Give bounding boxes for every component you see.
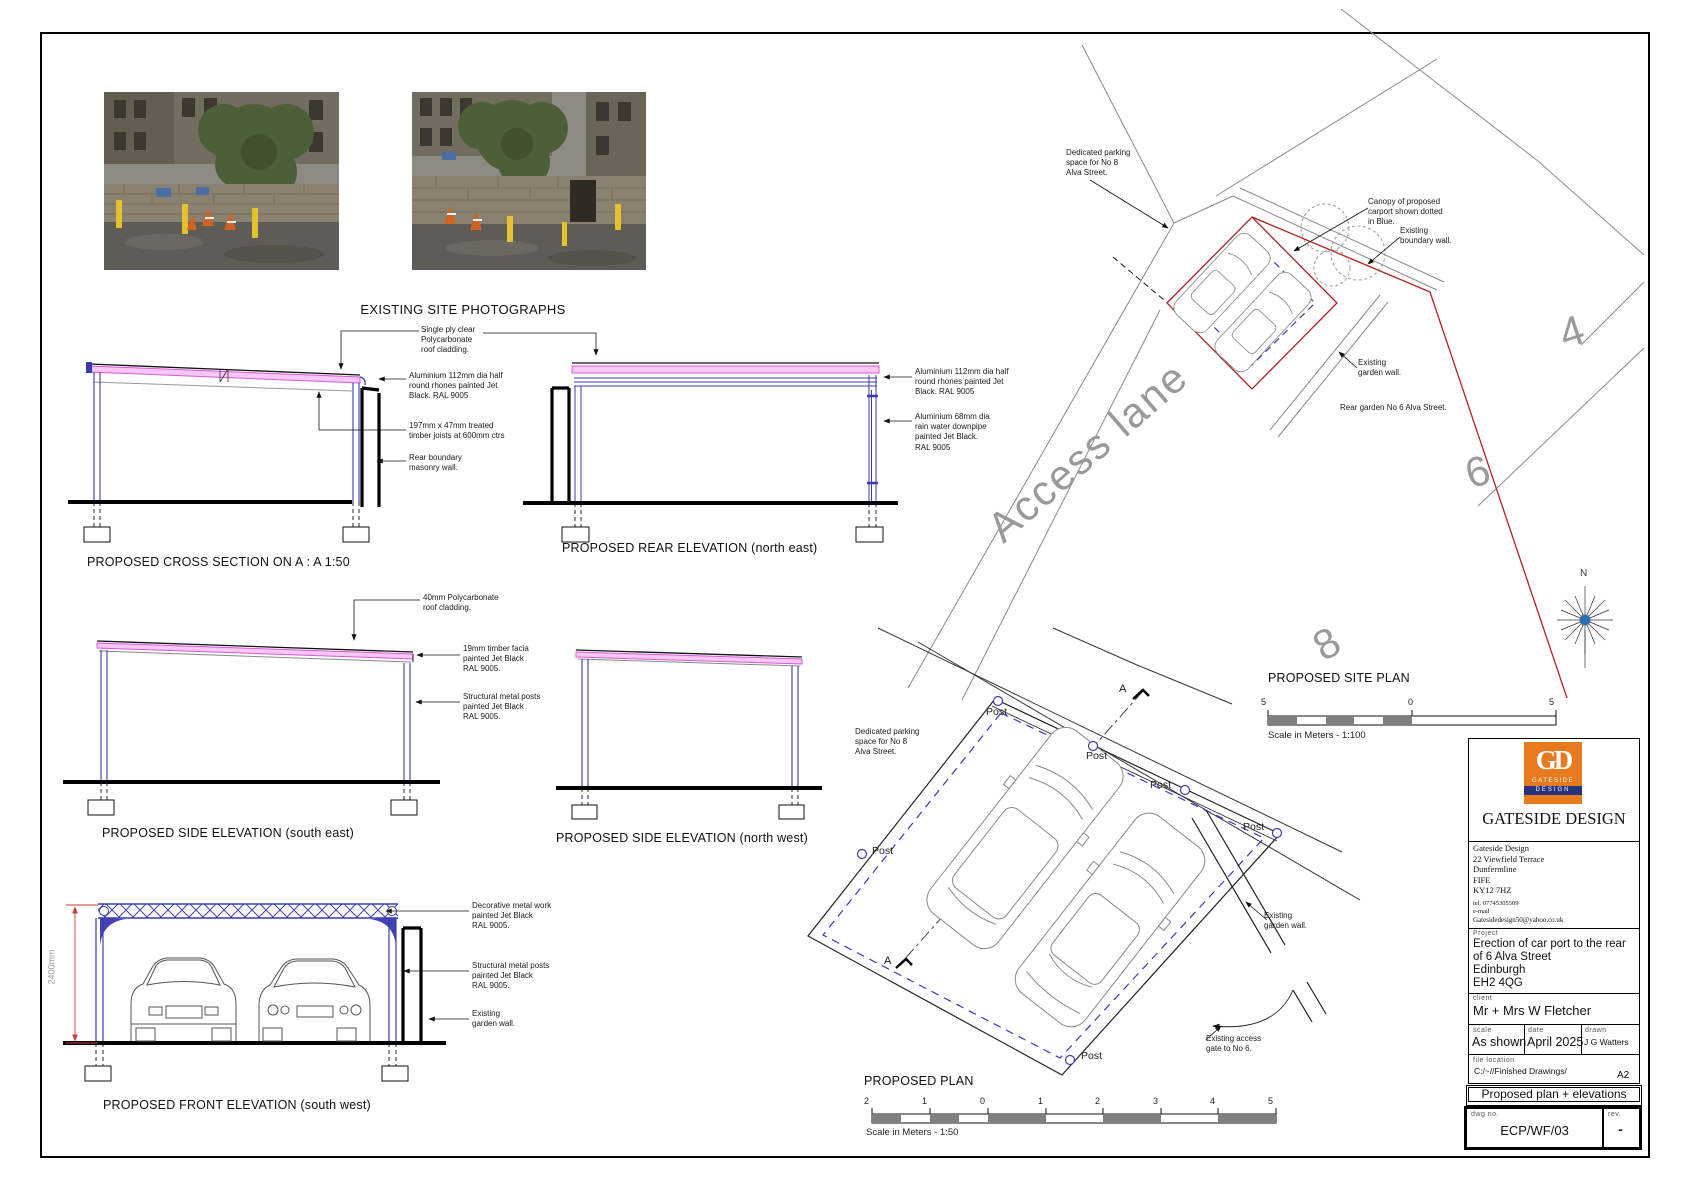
post-label: Post — [1081, 1050, 1102, 1062]
company-tel: tel. 07745305509 — [1473, 900, 1519, 907]
title-block: GD GATESIDE DESIGN GATESIDE DESIGN Gates… — [1468, 738, 1640, 1084]
se-roof-annotation: 40mm Polycarbonate roof cladding. — [423, 593, 499, 613]
sp-boundary-wall-annotation: Existing boundary wall. — [1400, 226, 1452, 246]
site-scale-tick: 0 — [1408, 697, 1413, 707]
cs-rhones-annotation: Aluminium 112mm dia half round rhones pa… — [409, 371, 503, 402]
plan-scale-bar — [872, 1108, 1276, 1123]
drawn-value: J G Watters — [1584, 1037, 1629, 1047]
plan-scale-tick: 2 — [864, 1096, 869, 1106]
site-plan-drawing — [908, 9, 1644, 725]
sheet-size: A2 — [1617, 1070, 1629, 1081]
logo-monogram: GD — [1524, 742, 1582, 778]
divider — [1469, 841, 1639, 842]
plan-gate-annotation: Existing access gate to No 6. — [1206, 1034, 1261, 1054]
cs-roof-annotation: Single ply clear Polycarbonate roof clad… — [421, 325, 475, 356]
rear-elevation-caption: PROPOSED REAR ELEVATION (north east) — [562, 541, 817, 555]
photos-caption: EXISTING SITE PHOTOGRAPHS — [343, 302, 583, 317]
rev-value: - — [1604, 1121, 1637, 1137]
post-label: Post — [1086, 750, 1107, 762]
dwg-number-box: dwg no. ECP/WF/03 rev. - — [1464, 1106, 1642, 1150]
drawn-label: drawn — [1585, 1027, 1607, 1034]
cs-joists-annotation: 197mm x 47mm treated timber joists at 60… — [409, 421, 505, 441]
cross-section-drawing — [68, 331, 596, 542]
site-photo-1-image — [104, 92, 339, 270]
logo-name-line1: GATESIDE — [1524, 778, 1582, 784]
date-label: date — [1528, 1027, 1544, 1034]
project-label: Project — [1473, 930, 1498, 937]
compass-north-label: N — [1580, 568, 1587, 579]
plan-garden-wall-annotation: Existing garden wall. — [1264, 911, 1307, 931]
front-elevation-caption: PROPOSED FRONT ELEVATION (south west) — [103, 1098, 371, 1112]
re-rhones-annotation: Aluminium 112mm dia half round rhones pa… — [915, 367, 1009, 398]
se-facia-annotation: 19mm timber facia painted Jet Black RAL … — [463, 644, 529, 675]
sp-parking-annotation: Dedicated parking space for No 8 Alva St… — [1066, 148, 1130, 179]
rev-label: rev. — [1608, 1111, 1621, 1118]
date-value: April 2025 — [1527, 1035, 1583, 1049]
post-label: Post — [1150, 779, 1171, 791]
side-elevation-nw-drawing — [556, 650, 822, 819]
company-logo: GD GATESIDE DESIGN — [1524, 742, 1582, 804]
divider — [1469, 928, 1639, 929]
compass-icon — [1557, 586, 1613, 668]
side-elevation-nw-caption: PROPOSED SIDE ELEVATION (north west) — [556, 831, 808, 845]
post-label: Post — [872, 845, 893, 857]
dwg-number-value: ECP/WF/03 — [1467, 1123, 1602, 1138]
scale-label: scale — [1473, 1027, 1492, 1034]
client-label: client — [1473, 995, 1492, 1002]
site-photo-2 — [412, 92, 646, 270]
site-plan-caption: PROPOSED SITE PLAN — [1268, 671, 1410, 685]
company-address: Gateside Design 22 Viewfield Terrace Dun… — [1473, 843, 1544, 896]
logo-name-line2: DESIGN — [1524, 786, 1582, 795]
plan-scale-tick: 4 — [1210, 1096, 1215, 1106]
section-marker-a: A — [1119, 683, 1126, 695]
fe-height-dimension: 2400mm — [47, 949, 57, 984]
plan-scale-tick: 5 — [1268, 1096, 1273, 1106]
cross-section-caption: PROPOSED CROSS SECTION ON A : A 1:50 — [87, 555, 350, 569]
company-email: Gatesidedesign50@yahoo.co.uk — [1473, 916, 1563, 924]
divider — [1469, 993, 1639, 994]
dwg-number-label: dwg no. — [1471, 1111, 1499, 1118]
plan-drawing — [808, 628, 1360, 1123]
site-scale-tick: 5 — [1549, 697, 1554, 707]
plan-scale-tick: 0 — [980, 1096, 985, 1106]
rear-elevation-drawing — [523, 363, 912, 542]
drawing-title: Proposed plan + elevations — [1468, 1087, 1640, 1102]
cs-wall-annotation: Rear boundary masonry wall. — [409, 453, 462, 473]
re-downpipe-annotation: Aluminium 68mm dia rain water downpipe p… — [915, 412, 990, 453]
section-marker-a: A — [884, 955, 891, 967]
front-elevation-drawing — [63, 904, 469, 1081]
fe-decorative-annotation: Decorative metal work painted Jet Black … — [472, 901, 551, 932]
sp-canopy-annotation: Canopy of proposed carport shown dotted … — [1368, 197, 1443, 228]
scale-value: As shown — [1472, 1035, 1526, 1049]
side-elevation-se-caption: PROPOSED SIDE ELEVATION (south east) — [102, 826, 354, 840]
plan-scale-tick: 1 — [922, 1096, 927, 1106]
plan-parking-annotation: Dedicated parking space for No 8 Alva St… — [855, 727, 919, 758]
plan-scale-tick: 3 — [1153, 1096, 1158, 1106]
sp-rear-garden-annotation: Rear garden No 6 Alva Street. — [1340, 403, 1447, 413]
file-location-value: C:/~//Finished Drawings/ — [1474, 1066, 1567, 1076]
site-scale-caption: Scale in Meters - 1:100 — [1268, 730, 1366, 741]
post-label: Post — [1243, 821, 1264, 833]
client-name: Mr + Mrs W Fletcher — [1473, 1003, 1591, 1018]
fe-wall-annotation: Existing garden wall. — [472, 1009, 515, 1029]
company-name: GATESIDE DESIGN — [1469, 809, 1639, 829]
site-scale-tick: 5 — [1261, 697, 1266, 707]
side-elevation-se-drawing — [63, 600, 460, 815]
se-posts-annotation: Structural metal posts painted Jet Black… — [463, 692, 540, 723]
project-description: Erection of car port to the rear of 6 Al… — [1473, 938, 1635, 990]
sp-garden-wall-annotation: Existing garden wall. — [1358, 358, 1401, 378]
divider — [1469, 1054, 1639, 1055]
plan-scale-tick: 1 — [1038, 1096, 1043, 1106]
plan-scale-caption: Scale in Meters - 1:50 — [866, 1127, 958, 1138]
email-label: e-mail — [1473, 908, 1490, 915]
post-label: Post — [986, 706, 1007, 718]
site-plan-scale-bar — [1268, 710, 1556, 725]
file-location-label: file location — [1473, 1057, 1515, 1064]
site-photo-1 — [104, 92, 339, 270]
site-photo-2-image — [412, 92, 646, 270]
plan-scale-tick: 2 — [1095, 1096, 1100, 1106]
fe-posts-annotation: Structural metal posts painted Jet Black… — [472, 961, 549, 992]
drawing-title-bar: Proposed plan + elevations — [1466, 1085, 1642, 1106]
plan-caption: PROPOSED PLAN — [864, 1074, 974, 1088]
